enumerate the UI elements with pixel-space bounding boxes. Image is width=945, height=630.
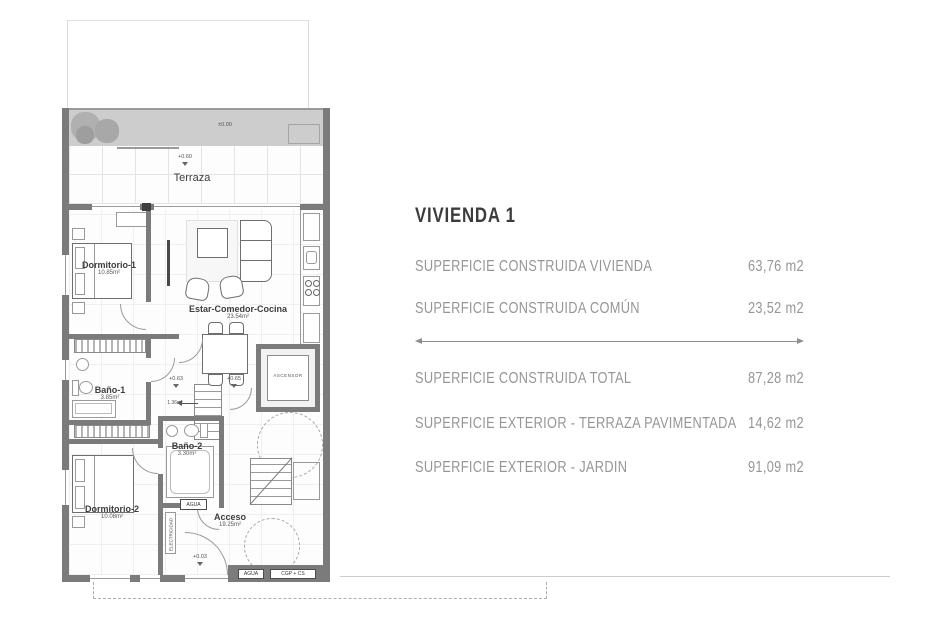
room-area: 10.85m² bbox=[82, 270, 136, 277]
room-name: Baño-2 bbox=[172, 441, 203, 451]
arrowhead-right-icon bbox=[797, 338, 804, 344]
chair-icon bbox=[208, 374, 223, 386]
row-label: SUPERFICIE EXTERIOR - JARDIN bbox=[415, 459, 627, 477]
room-area: 19.25m² bbox=[214, 522, 246, 529]
row-label: SUPERFICIE CONSTRUIDA COMÚN bbox=[415, 300, 640, 318]
room-area: 3.85m² bbox=[95, 395, 126, 402]
level-mark-stair-right: +0.65 bbox=[227, 376, 241, 382]
wall bbox=[146, 210, 151, 302]
row-value: 91,09 m2 bbox=[748, 459, 804, 477]
kitchen-cabinet-icon bbox=[303, 213, 320, 241]
window-glass-line bbox=[65, 255, 66, 295]
projection-line-left bbox=[67, 20, 68, 108]
closet-icon bbox=[74, 425, 150, 438]
room-area: 23.54m² bbox=[189, 314, 287, 321]
burner-icon bbox=[305, 280, 312, 287]
entrance-threshold bbox=[185, 578, 228, 579]
summary-row: SUPERFICIE CONSTRUIDA VIVIENDA 63,76 m2 bbox=[415, 258, 804, 278]
pillar bbox=[142, 203, 151, 211]
dining-table-icon bbox=[202, 334, 248, 374]
room-name: Baño-1 bbox=[95, 385, 126, 395]
room-name: Acceso bbox=[214, 512, 246, 522]
level-arrow-icon bbox=[231, 384, 237, 388]
burner-icon bbox=[305, 289, 312, 296]
sofa-cushion-line bbox=[241, 260, 271, 261]
toilet-tank bbox=[72, 380, 79, 396]
arrowhead-left-icon bbox=[415, 338, 422, 344]
elevator-cab bbox=[267, 355, 309, 401]
room-label-terraza: Terraza bbox=[174, 172, 211, 185]
row-label: SUPERFICIE CONSTRUIDA VIVIENDA bbox=[415, 258, 652, 276]
summary-row: SUPERFICIE CONSTRUIDA TOTAL 87,28 m2 bbox=[415, 370, 804, 390]
row-label: SUPERFICIE CONSTRUIDA TOTAL bbox=[415, 370, 631, 388]
room-name: Estar-Comedor-Cocina bbox=[189, 304, 287, 314]
wall bbox=[69, 439, 163, 444]
window-glass-line bbox=[92, 206, 140, 207]
projection-line-top bbox=[67, 20, 309, 21]
pillow-icon bbox=[75, 459, 85, 482]
level-mark-terrace: +0.60 bbox=[178, 154, 192, 160]
wall bbox=[62, 108, 69, 582]
window-glass-line bbox=[154, 206, 300, 207]
room-label-bano-1: Baño-1 3.85m² bbox=[95, 385, 126, 402]
summary-row: SUPERFICIE EXTERIOR - TERRAZA PAVIMENTAD… bbox=[415, 415, 804, 435]
row-label: SUPERFICIE EXTERIOR - TERRAZA PAVIMENTAD… bbox=[415, 415, 737, 433]
room-area: 10.08m² bbox=[85, 514, 139, 521]
level-mark-entrance: +0.03 bbox=[193, 554, 207, 560]
wall bbox=[146, 382, 151, 425]
wall bbox=[151, 334, 179, 339]
level-arrow-icon bbox=[197, 562, 203, 566]
chair-icon bbox=[229, 322, 244, 334]
room-area: 3.30m² bbox=[172, 451, 203, 458]
window bbox=[92, 204, 140, 210]
washbasin-icon bbox=[76, 358, 89, 371]
level-arrow-icon bbox=[182, 162, 188, 166]
hall-area-label: 1.36m² bbox=[167, 400, 183, 406]
room-label-bano-2: Baño-2 3.30m² bbox=[172, 441, 203, 458]
row-value: 63,76 m2 bbox=[748, 258, 804, 276]
projection-line-right bbox=[308, 20, 309, 108]
toilet-tank bbox=[200, 423, 208, 438]
nightstand-icon bbox=[72, 228, 85, 240]
chair-icon bbox=[208, 322, 223, 334]
property-boundary-line bbox=[93, 582, 547, 599]
pillow-icon bbox=[75, 486, 85, 509]
coffee-table-icon bbox=[197, 228, 228, 258]
room-label-acceso: Acceso 19.25m² bbox=[214, 512, 246, 529]
nightstand-icon bbox=[72, 302, 85, 314]
wall bbox=[163, 416, 224, 421]
wall bbox=[62, 108, 330, 110]
wall bbox=[219, 416, 224, 508]
sofa-cushion-line bbox=[241, 240, 271, 241]
window bbox=[154, 204, 300, 210]
room-name: Dormitorio-1 bbox=[82, 260, 136, 270]
level-mark-stair-left: +0.63 bbox=[169, 376, 183, 382]
wall bbox=[323, 108, 330, 582]
summary-row: SUPERFICIE EXTERIOR - JARDIN 91,09 m2 bbox=[415, 459, 804, 479]
page-title: VIVIENDA 1 bbox=[415, 204, 516, 228]
electricity-riser-label: ELECTRICIDAD bbox=[169, 516, 174, 554]
electricity-riser: ELECTRICIDAD bbox=[165, 512, 176, 554]
washbasin-icon bbox=[166, 425, 178, 437]
sink-basin bbox=[306, 251, 317, 264]
window-glass-line bbox=[140, 578, 160, 579]
burner-icon bbox=[313, 280, 320, 287]
wall bbox=[69, 420, 151, 425]
utility-box-cgp: CGP + CS bbox=[270, 569, 316, 579]
room-label-ascensor: ASCENSOR bbox=[268, 373, 308, 378]
row-value: 87,28 m2 bbox=[748, 370, 804, 388]
stair-landing-outline bbox=[293, 462, 320, 500]
tree-icon bbox=[95, 119, 119, 143]
sofa-icon bbox=[240, 220, 272, 282]
utility-box-agua: AGUA bbox=[180, 499, 207, 510]
terrace-edge-line bbox=[117, 147, 179, 149]
summary-row: SUPERFICIE CONSTRUIDA COMÚN 23,52 m2 bbox=[415, 300, 804, 320]
fridge-icon bbox=[303, 313, 320, 343]
kitchen-counter-edge bbox=[300, 210, 301, 348]
row-value: 14,62 m2 bbox=[748, 415, 804, 433]
burner-icon bbox=[313, 289, 320, 296]
room-label-dormitorio-2: Dormitorio-2 10.08m² bbox=[85, 504, 139, 521]
summary-panel: VIVIENDA 1 SUPERFICIE CONSTRUIDA VIVIEND… bbox=[415, 204, 804, 484]
floor-plan: ±0.00 +0.60 Terraza bbox=[62, 108, 330, 582]
level-mark-ground: ±0.00 bbox=[218, 122, 232, 128]
toilet-icon bbox=[184, 424, 199, 437]
garden-feature-outline bbox=[288, 124, 320, 144]
utility-box-agua: AGUA bbox=[238, 569, 264, 579]
window-glass-line bbox=[65, 360, 66, 380]
wall bbox=[158, 474, 163, 575]
window-glass-line bbox=[90, 578, 130, 579]
wardrobe-icon bbox=[116, 212, 148, 227]
wall bbox=[146, 334, 151, 358]
window-glass-line bbox=[65, 470, 66, 505]
room-label-dormitorio-1: Dormitorio-1 10.85m² bbox=[82, 260, 136, 277]
nightstand-icon bbox=[72, 516, 85, 528]
divider-line bbox=[417, 341, 802, 342]
tree-icon bbox=[76, 126, 94, 144]
shower-tray bbox=[75, 403, 112, 414]
room-label-estar: Estar-Comedor-Cocina 23.54m² bbox=[189, 304, 287, 321]
ground-line bbox=[340, 576, 890, 577]
radiator-icon bbox=[74, 339, 146, 353]
screenshot: ±0.00 +0.60 Terraza bbox=[0, 0, 945, 630]
row-value: 23,52 m2 bbox=[748, 300, 804, 318]
toilet-icon bbox=[79, 381, 93, 394]
wall bbox=[69, 334, 151, 339]
tv-icon bbox=[167, 240, 170, 286]
level-arrow-icon bbox=[173, 384, 179, 388]
armchair-icon bbox=[218, 274, 244, 300]
room-name: Dormitorio-2 bbox=[85, 504, 139, 514]
